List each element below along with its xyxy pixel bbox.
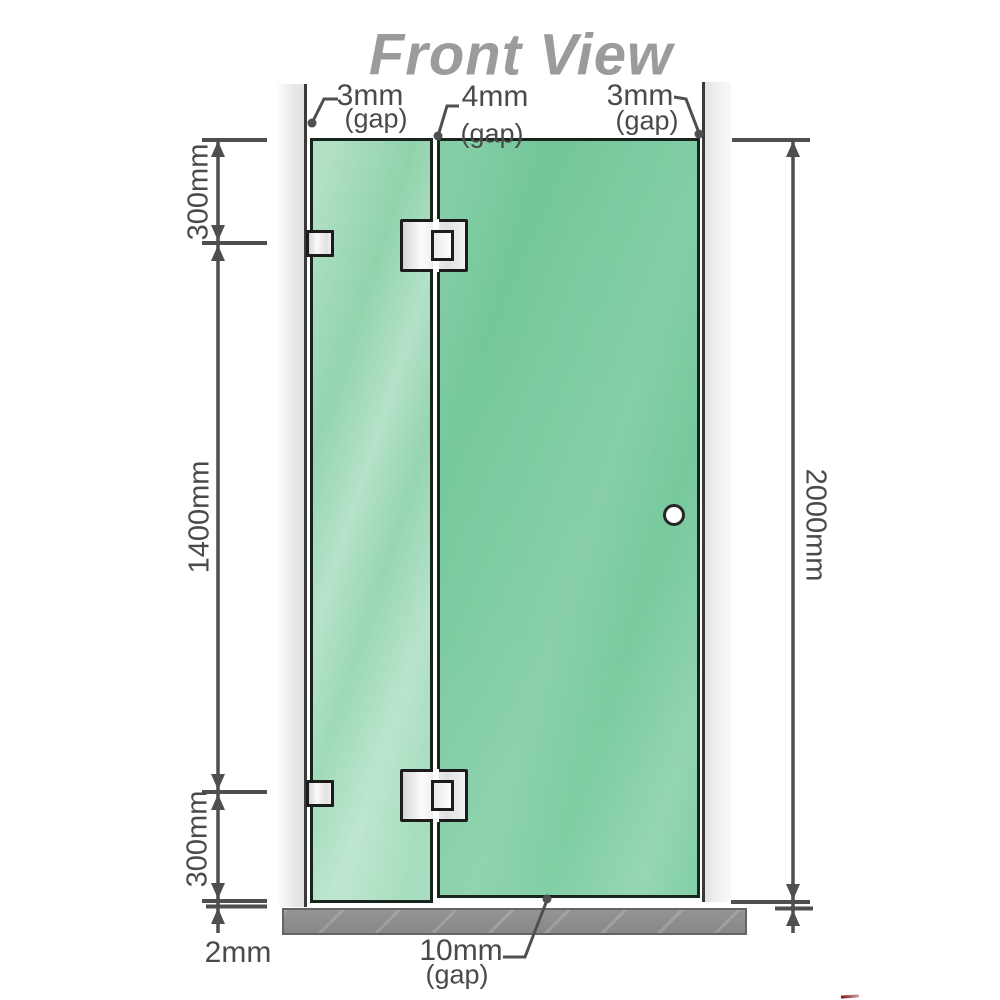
gap-left-suffix: (gap) — [344, 106, 407, 133]
glass-hinge-bottom — [400, 769, 468, 822]
diagram-title: Front View — [369, 22, 673, 89]
left-wall — [277, 84, 307, 907]
gap-bottom-suffix: (gap) — [425, 962, 488, 989]
dim-left-middle: 1400mm — [186, 461, 215, 574]
door-glass-panel — [437, 138, 700, 898]
hinge-notch — [431, 780, 454, 811]
red-artifact-mark — [841, 994, 859, 998]
right-wall — [702, 82, 731, 902]
wall-bracket-bottom — [306, 780, 334, 807]
glass-hinge-top — [400, 219, 468, 272]
dim-left-bottom: 300mm — [184, 791, 213, 888]
floor-base — [282, 908, 747, 935]
dim-left-top: 300mm — [185, 144, 214, 241]
wall-bracket-top — [306, 230, 334, 257]
door-handle-knob — [663, 504, 685, 526]
dim-right-height: 2000mm — [801, 469, 830, 582]
hinge-notch — [431, 230, 454, 261]
front-view-diagram: Front View — [0, 0, 1000, 1000]
dim-bottom-left: 2mm — [205, 938, 272, 968]
gap-middle-suffix: (gap) — [460, 121, 523, 148]
gap-right-suffix: (gap) — [615, 108, 678, 135]
